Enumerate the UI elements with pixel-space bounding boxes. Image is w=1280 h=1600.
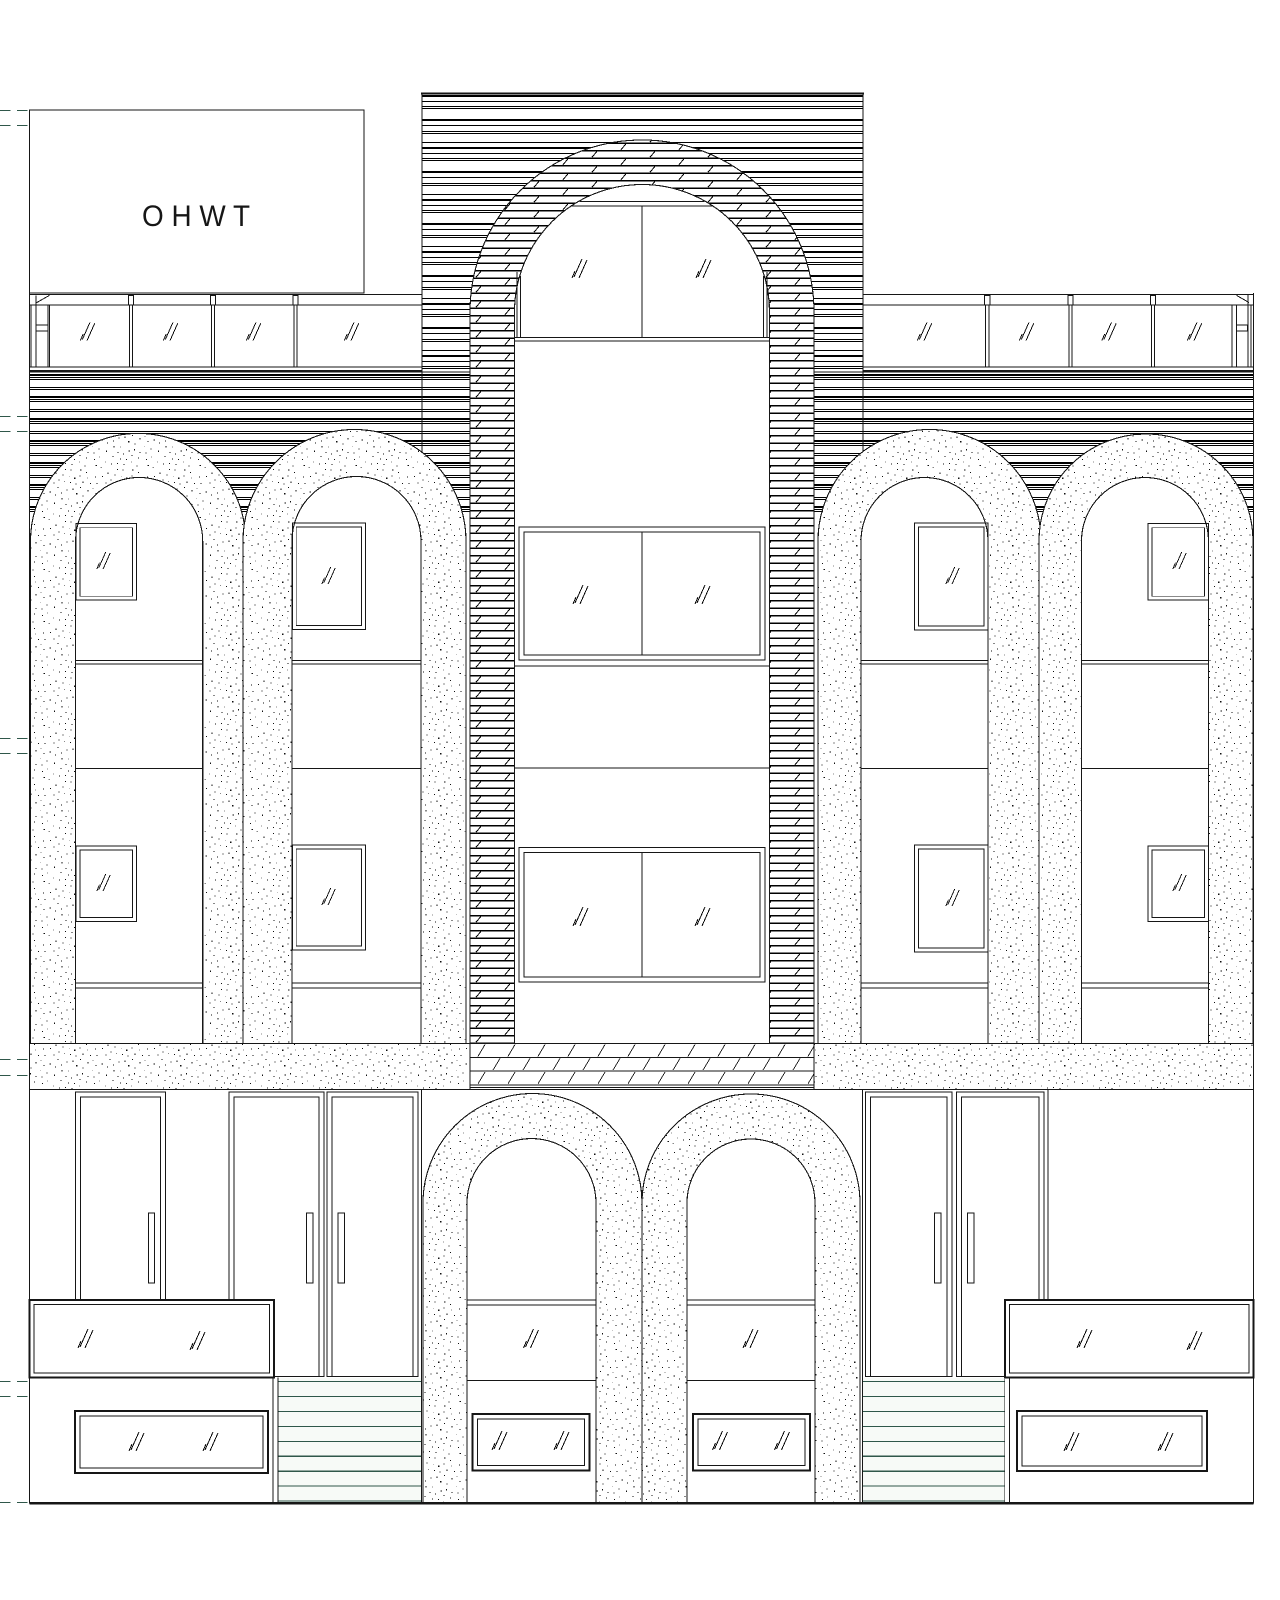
svg-text:O H W T: O H W T bbox=[142, 200, 250, 233]
